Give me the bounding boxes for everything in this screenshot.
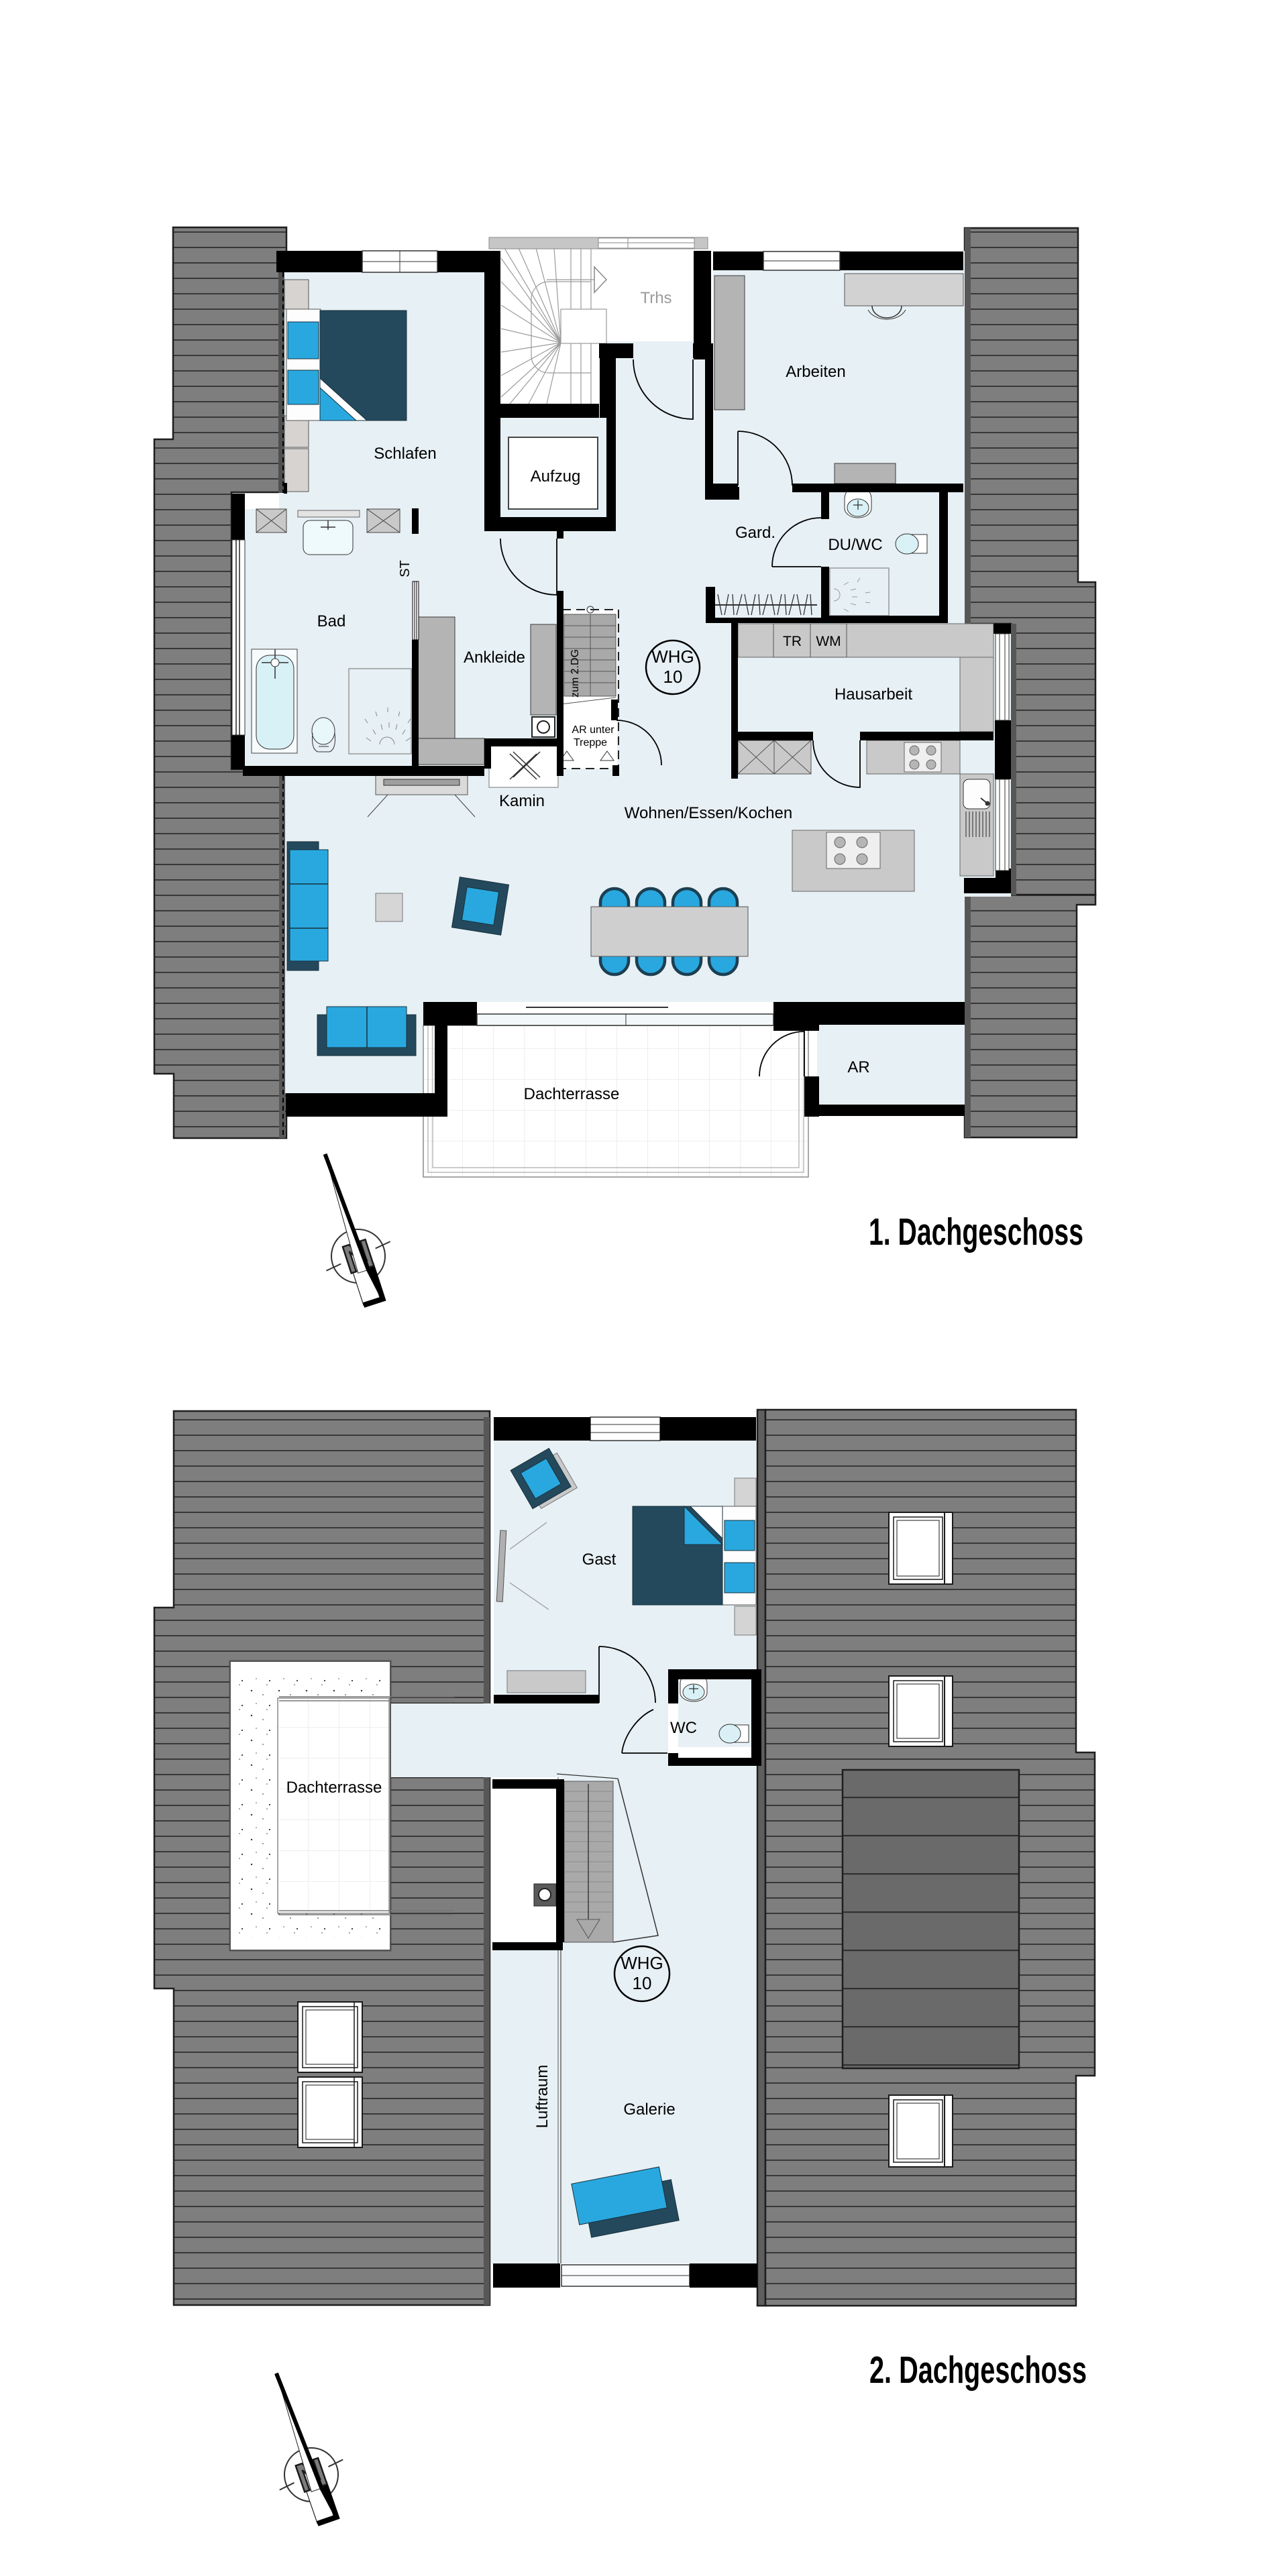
svg-text:Wohnen/Essen/Kochen: Wohnen/Essen/Kochen — [625, 804, 792, 822]
svg-text:ST: ST — [398, 560, 413, 577]
svg-text:WHG: WHG — [621, 1953, 663, 1973]
svg-text:10: 10 — [633, 1973, 652, 1993]
svg-text:TR: TR — [783, 634, 802, 649]
svg-text:Galerie: Galerie — [623, 2101, 675, 2119]
svg-text:AR: AR — [847, 1058, 869, 1076]
svg-text:Dachterrasse: Dachterrasse — [286, 1779, 382, 1797]
svg-text:Gard.: Gard. — [735, 524, 775, 542]
svg-text:Ankleide: Ankleide — [464, 649, 525, 667]
svg-text:WC: WC — [670, 1719, 697, 1737]
svg-text:Luftraum: Luftraum — [533, 2065, 551, 2129]
svg-text:Bad: Bad — [317, 612, 346, 630]
svg-text:AR unter: AR unter — [572, 724, 614, 736]
svg-text:Kamin: Kamin — [499, 792, 545, 810]
svg-text:10: 10 — [663, 667, 683, 687]
svg-text:Schlafen: Schlafen — [374, 445, 436, 463]
svg-text:Dachterrasse: Dachterrasse — [524, 1085, 620, 1103]
svg-text:Hausarbeit: Hausarbeit — [835, 685, 912, 704]
svg-text:Trhs: Trhs — [640, 289, 672, 307]
svg-text:Gast: Gast — [582, 1551, 616, 1569]
svg-text:Aufzug: Aufzug — [531, 467, 581, 486]
svg-text:2. Dachgeschoss: 2. Dachgeschoss — [869, 2349, 1087, 2392]
svg-text:WM: WM — [816, 634, 841, 649]
svg-text:zum 2.DG: zum 2.DG — [570, 649, 581, 697]
svg-text:DU/WC: DU/WC — [828, 536, 882, 554]
svg-text:Arbeiten: Arbeiten — [786, 363, 845, 381]
svg-text:1. Dachgeschoss: 1. Dachgeschoss — [869, 1211, 1083, 1253]
svg-text:Treppe: Treppe — [574, 737, 607, 748]
svg-text:WHG: WHG — [651, 647, 694, 667]
